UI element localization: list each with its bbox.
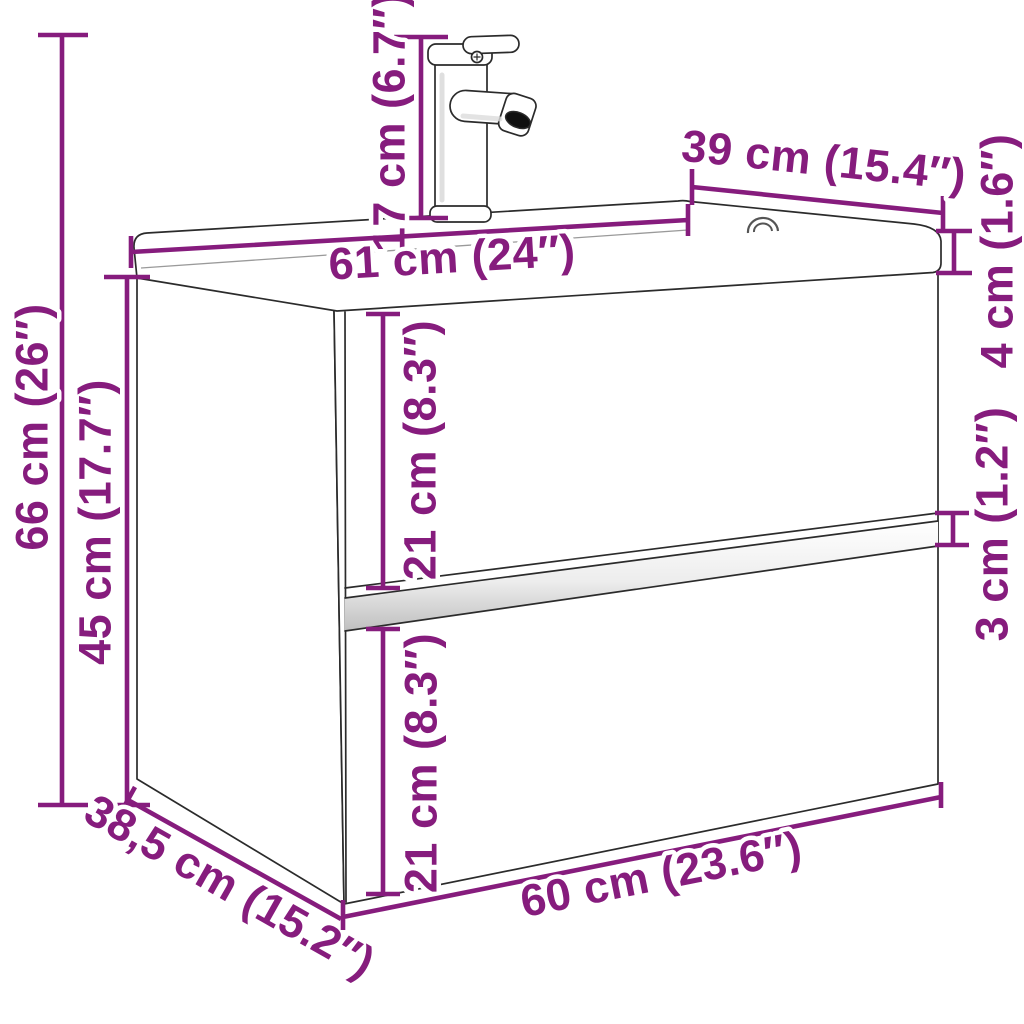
faucet-spout-shading — [463, 116, 500, 119]
upper-drawer-height-label: 21 cm (8.3″) — [395, 320, 446, 580]
cabinet-height-label: 45 cm (17.7″) — [70, 379, 121, 665]
cabinet-left-side-panel — [137, 277, 344, 904]
faucet-drawing — [428, 35, 538, 222]
dim-drawer-gap: 3 cm (1.2″) — [935, 407, 1018, 642]
faucet-lever-handle — [463, 35, 520, 54]
diagram-page: 66 cm (26″) 45 cm (17.7″) 17 cm (6.7″) 6… — [0, 0, 1024, 1024]
faucet-screw-icon — [472, 52, 483, 63]
dimension-diagram: 66 cm (26″) 45 cm (17.7″) 17 cm (6.7″) 6… — [0, 0, 1024, 1024]
vanity-cabinet-drawing — [137, 271, 938, 904]
overall-height-label: 66 cm (26″) — [7, 303, 58, 550]
lower-drawer-height-label: 21 cm (8.3″) — [396, 633, 447, 893]
faucet-height-label: 17 cm (6.7″) — [364, 0, 415, 252]
basin-thickness-label: 4 cm (1.6″) — [972, 134, 1023, 369]
drawer-gap-label: 3 cm (1.2″) — [967, 407, 1018, 642]
